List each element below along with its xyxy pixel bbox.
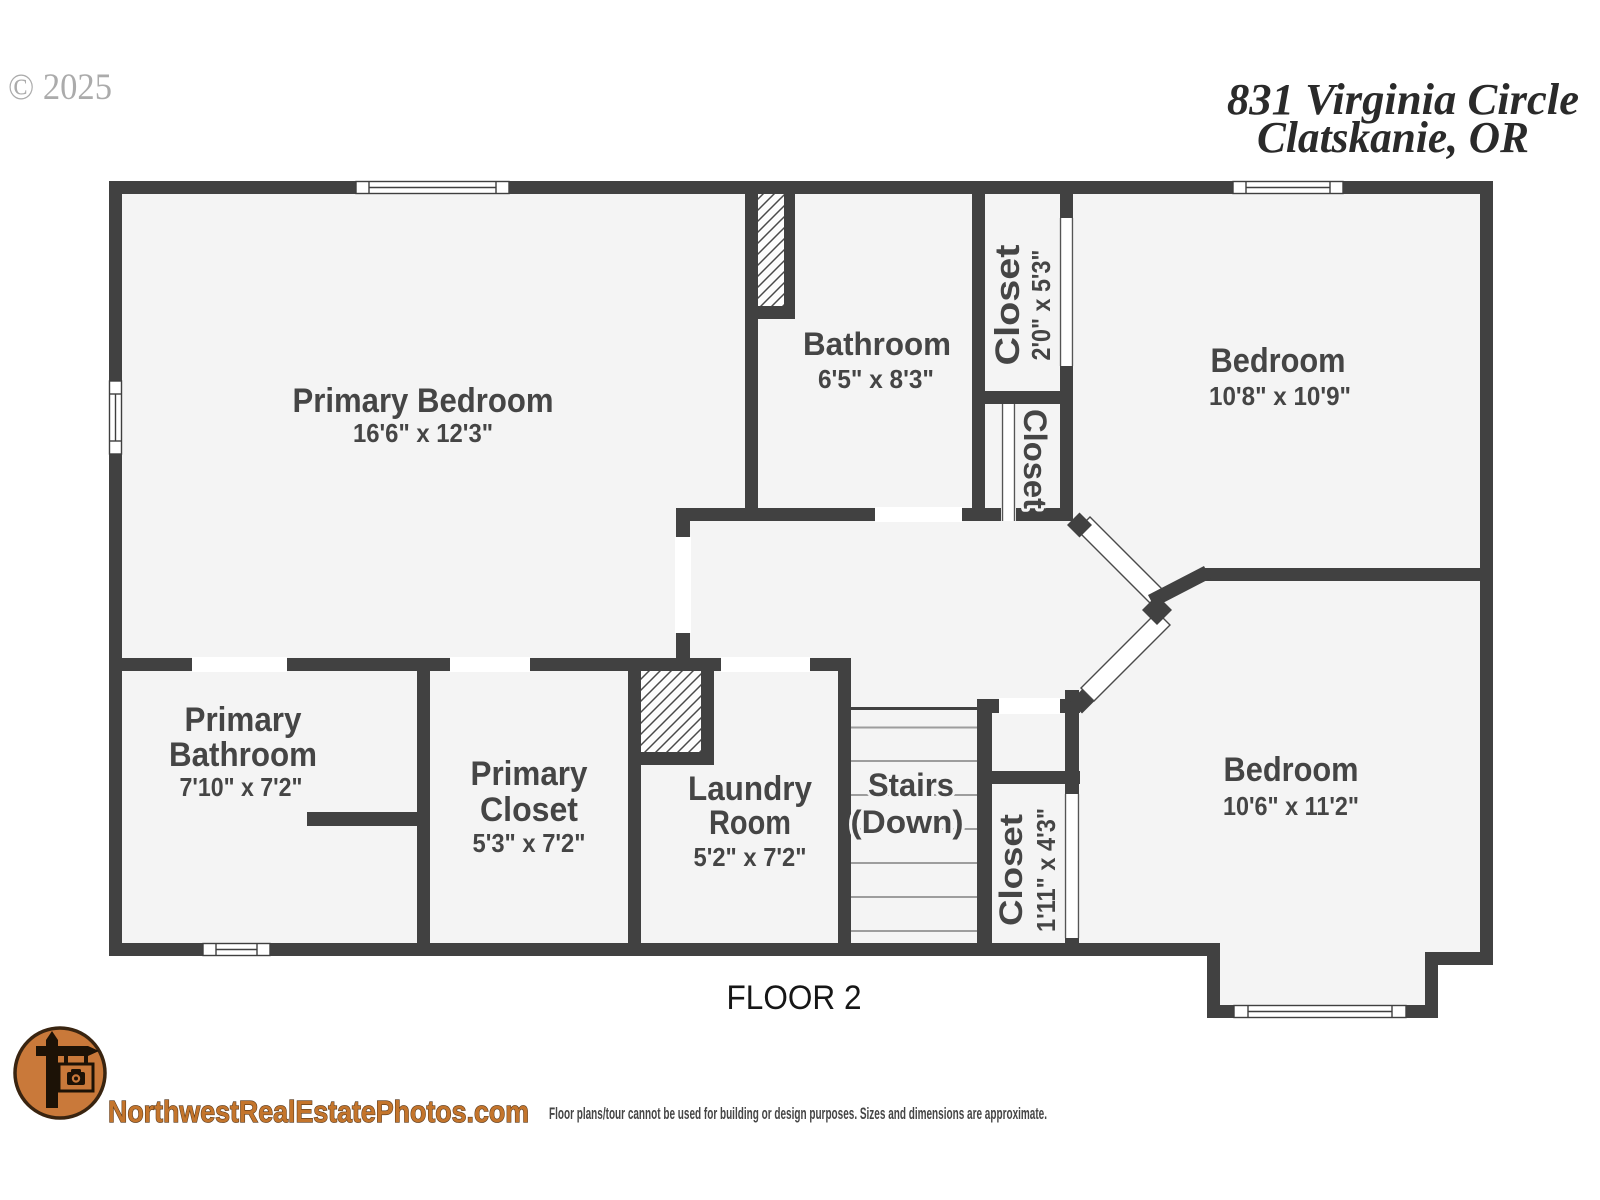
svg-text:Bedroom: Bedroom bbox=[1224, 751, 1359, 789]
svg-text:10'8" x 10'9": 10'8" x 10'9" bbox=[1209, 381, 1351, 411]
svg-text:Closet: Closet bbox=[1017, 409, 1053, 509]
svg-text:6'5" x 8'3": 6'5" x 8'3" bbox=[818, 364, 934, 394]
svg-text:Bedroom: Bedroom bbox=[1211, 342, 1346, 380]
svg-text:Laundry: Laundry bbox=[688, 770, 812, 808]
svg-text:10'6" x 11'2": 10'6" x 11'2" bbox=[1223, 791, 1359, 821]
svg-text:Closet: Closet bbox=[993, 814, 1029, 926]
svg-text:1'11" x 4'3": 1'11" x 4'3" bbox=[1031, 808, 1061, 932]
svg-text:Room: Room bbox=[709, 804, 791, 842]
svg-text:Bathroom: Bathroom bbox=[803, 326, 951, 362]
svg-text:© 2025: © 2025 bbox=[8, 67, 112, 108]
svg-text:5'2" x 7'2": 5'2" x 7'2" bbox=[694, 842, 807, 872]
svg-text:Stairs: Stairs bbox=[868, 767, 954, 803]
svg-text:16'6" x 12'3": 16'6" x 12'3" bbox=[353, 418, 493, 448]
svg-text:Primary: Primary bbox=[471, 755, 588, 793]
svg-text:Bathroom: Bathroom bbox=[169, 736, 317, 774]
svg-text:FLOOR 2: FLOOR 2 bbox=[727, 979, 862, 1017]
svg-text:2'0" x 5'3": 2'0" x 5'3" bbox=[1026, 250, 1056, 361]
svg-text:Clatskanie, OR: Clatskanie, OR bbox=[1257, 113, 1529, 162]
svg-text:Closet: Closet bbox=[989, 245, 1027, 366]
svg-text:Primary Bedroom: Primary Bedroom bbox=[293, 382, 554, 420]
svg-text:NorthwestRealEstatePhotos.com: NorthwestRealEstatePhotos.com bbox=[108, 1094, 529, 1129]
svg-text:(Down): (Down) bbox=[851, 804, 964, 840]
svg-text:Closet: Closet bbox=[480, 791, 578, 829]
svg-text:5'3" x 7'2": 5'3" x 7'2" bbox=[473, 828, 586, 858]
svg-text:Floor plans/tour cannot be use: Floor plans/tour cannot be used for buil… bbox=[549, 1105, 1047, 1123]
svg-text:7'10" x 7'2": 7'10" x 7'2" bbox=[180, 772, 303, 802]
svg-text:Primary: Primary bbox=[185, 701, 302, 739]
